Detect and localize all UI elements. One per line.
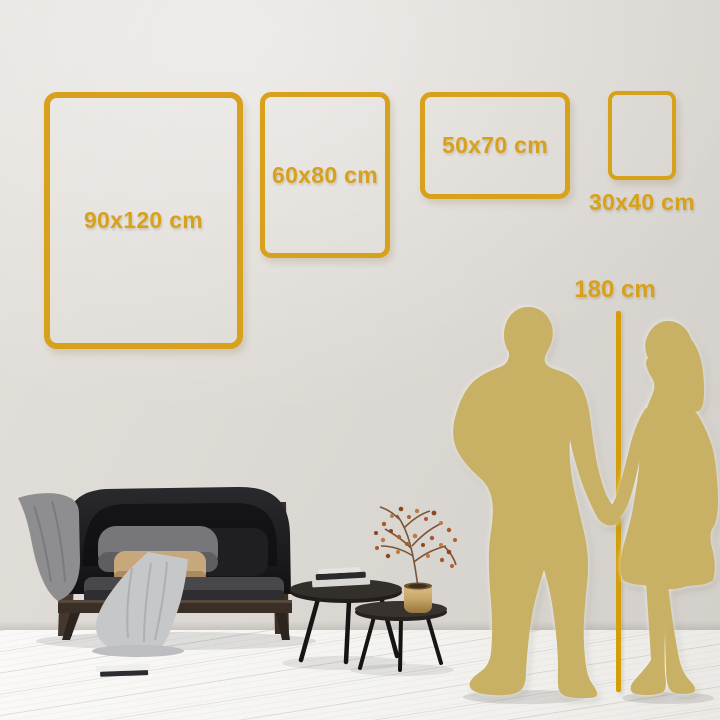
man-silhouette xyxy=(453,307,620,698)
woman-silhouette-back-leg xyxy=(665,583,695,694)
couple-silhouette xyxy=(0,0,720,720)
size-guide-scene: 90x120 cm 60x80 cm 50x70 cm 30x40 cm 180… xyxy=(0,0,720,720)
woman-silhouette-front-leg xyxy=(631,582,668,695)
